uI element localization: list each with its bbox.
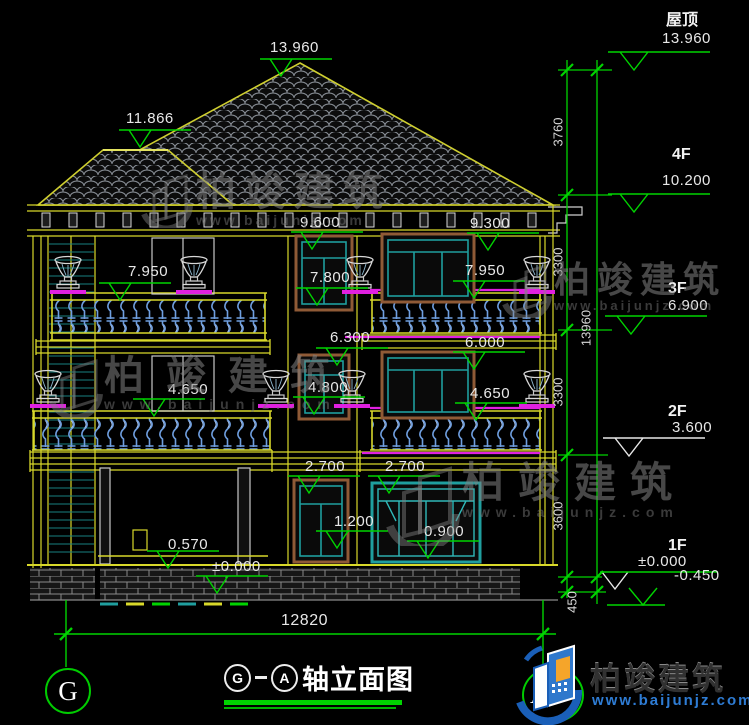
spot-ridge: 13.960	[270, 39, 319, 56]
spot-slab2-right: 2.700	[385, 458, 425, 475]
spot-porch: 0.570	[168, 536, 208, 553]
spot-win2-center: 4.800	[308, 379, 348, 396]
level-3f-name: 3F	[668, 280, 687, 298]
bottom-dimension	[54, 600, 556, 667]
spot-sill1-center: 1.200	[334, 513, 374, 530]
level-4f-elev: 10.200	[662, 172, 711, 189]
bottom-dim-label: 12820	[281, 612, 328, 630]
axis-bubble-g: G	[45, 668, 91, 714]
balustrade-2f-left	[32, 411, 272, 450]
spot-rail2-left: 4.650	[168, 381, 208, 398]
spot-rail2-right: 4.650	[470, 385, 510, 402]
brand-logo: 柏竣建筑 www.baijunjz.com	[512, 640, 749, 725]
title-axis-start: G	[232, 670, 243, 686]
level-roof-name: 屋顶	[666, 6, 698, 30]
plinth	[27, 565, 558, 604]
vdim-450: 450	[565, 591, 580, 613]
brand-logo-icon	[512, 640, 590, 725]
spot-rail3-left: 7.950	[128, 263, 168, 280]
title-axis-end: A	[279, 670, 289, 686]
spot-slab2-left: 2.700	[305, 458, 345, 475]
vdim-total: 13960	[579, 310, 594, 346]
level-1f-below: -0.450	[674, 567, 720, 584]
balustrade-3f-left	[50, 293, 267, 340]
vdim-3760: 3760	[551, 118, 566, 147]
window-2f-right	[382, 352, 474, 418]
title-axis-end-bubble: A	[271, 664, 298, 692]
drawing-title: G A 轴立面图	[224, 658, 414, 709]
spot-win3-center: 7.800	[310, 269, 350, 286]
roof	[38, 63, 553, 205]
title-underline-thick	[224, 700, 402, 705]
level-2f-elev: 3.600	[672, 419, 712, 436]
spot-sill1-right: 0.900	[424, 523, 464, 540]
title-underline-thin	[224, 707, 396, 709]
vdim-3300-b: 3300	[551, 378, 566, 407]
window-3f-right	[382, 234, 474, 302]
title-dash	[255, 676, 267, 679]
level-roof-elev: 13.960	[662, 30, 711, 47]
spot-ground: ±0.000	[212, 558, 261, 575]
spot-eave-left: 9.600	[300, 214, 340, 231]
spot-eave-right: 9.300	[470, 215, 510, 232]
level-markers-right	[600, 52, 718, 605]
vdim-3600: 3600	[551, 502, 566, 531]
title-text: 轴立面图	[302, 658, 414, 697]
spot-left-ridge: 11.866	[126, 110, 174, 127]
title-axis-start-bubble: G	[224, 664, 251, 692]
level-4f-name: 4F	[672, 146, 691, 164]
level-3f-elev: 6.900	[668, 297, 708, 314]
spot-slab3-center: 6.300	[330, 329, 370, 346]
elevation-drawing	[0, 0, 749, 725]
spot-rail3-right: 7.950	[465, 262, 505, 279]
cad-elevation-canvas: 13.960 11.866 9.600 9.300 7.950 7.800 7.…	[0, 0, 749, 725]
axis-bubble-g-label: G	[58, 676, 78, 707]
spot-slab3-right: 6.000	[465, 334, 505, 351]
brand-logo-url: www.baijunjz.com	[592, 692, 749, 709]
vdim-3300-a: 3300	[551, 248, 566, 277]
